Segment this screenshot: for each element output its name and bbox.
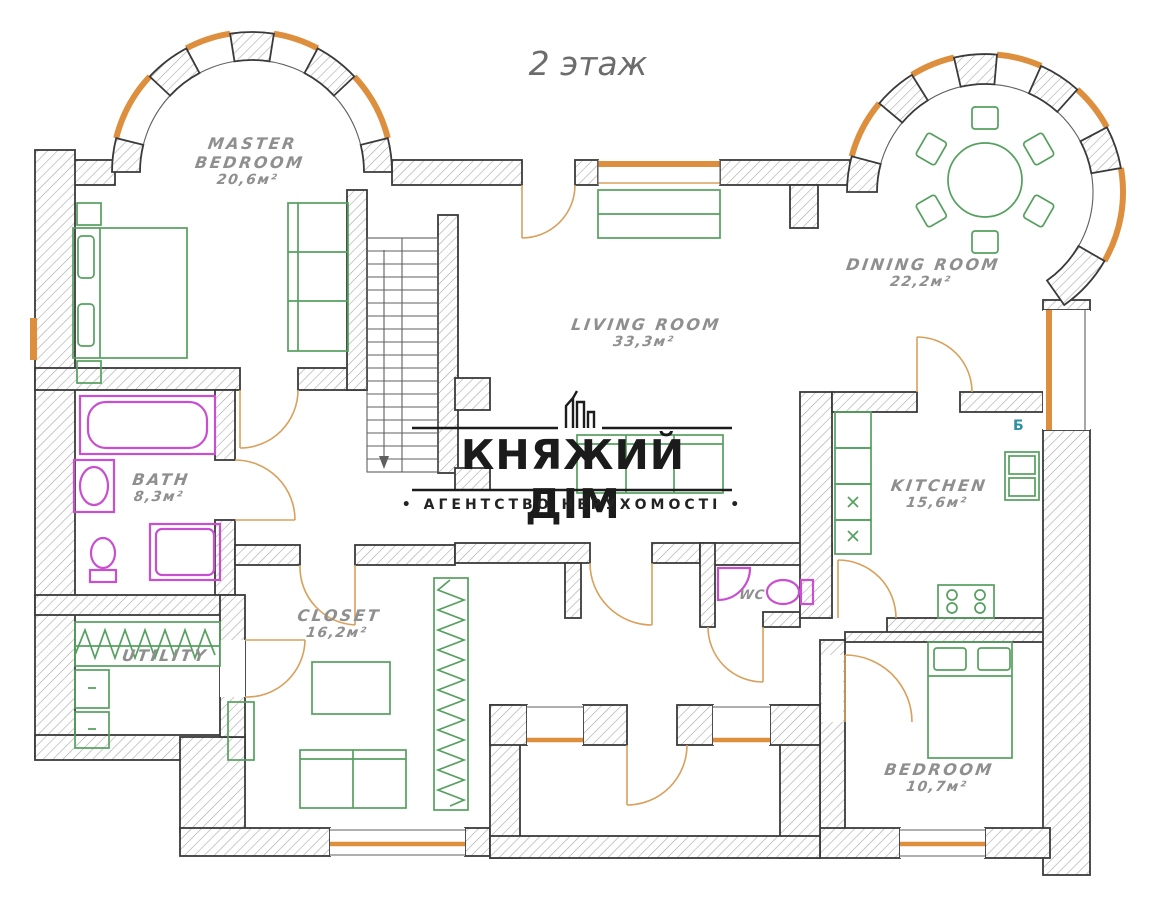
utility-closet-door: [245, 640, 305, 697]
closet-window: [330, 828, 465, 856]
balcony-door: [522, 185, 575, 238]
room-label-kitchen: KITCHEN 15,6м²: [887, 476, 988, 512]
room-label-utility: UTILITY: [121, 646, 210, 665]
kitchen-door: [838, 560, 896, 618]
terrace-window-left: [527, 705, 583, 745]
room-label-bedroom: BEDROOM 10,7м²: [881, 760, 995, 796]
kitchen-stove: [938, 585, 994, 618]
dining-table: [915, 107, 1054, 253]
room-label-bath: BATH 8,3м²: [129, 470, 191, 506]
bath-shower: [150, 524, 220, 580]
wc-door: [708, 627, 763, 682]
watermark-tagline: • АГЕНТСТВО НЕРУХОМОСТІ •: [400, 497, 745, 513]
room-label-living-room: LIVING ROOM 33,3м²: [568, 315, 723, 351]
living-room-window: [598, 160, 720, 185]
closet-sofa: [300, 750, 406, 808]
bath-door: [235, 460, 295, 520]
terrace-window-right: [713, 705, 770, 745]
watermark-brand: КНЯЖИЙ ДІМ: [412, 431, 734, 529]
master-sofa: [288, 203, 348, 351]
bedroom-window: [900, 828, 985, 858]
corridor-door: [590, 563, 652, 625]
kitchen-window: [1043, 310, 1090, 430]
kitchen-counter: [835, 412, 871, 554]
bedroom-door: [845, 655, 912, 722]
floor-title: 2 этаж: [529, 44, 648, 83]
room-label-dining-room: DINING ROOM 22,2м²: [843, 255, 1002, 291]
kitchen-boiler-symbol: Б: [1013, 418, 1024, 434]
living-cabinet: [598, 190, 720, 238]
dining-kitchen-door: [917, 337, 972, 392]
kitchen-fridge: [1005, 452, 1039, 500]
terrace-door: [627, 745, 687, 805]
room-label-closet: CLOSET 16,2м²: [294, 606, 382, 642]
closet-wardrobe: [434, 578, 468, 810]
bedroom-bed: [928, 642, 1012, 758]
bath-sink: [74, 460, 114, 512]
bath-toilet: [90, 538, 116, 582]
bathtub: [80, 396, 215, 454]
room-label-master-bedroom: MASTER BEDROOM 20,6м²: [191, 134, 308, 189]
closet-table: [312, 662, 390, 714]
master-bedroom-door: [240, 390, 298, 448]
stairs-down-arrow: [379, 456, 389, 469]
left-wall-window: [30, 318, 37, 360]
floorplan: 2 этаж MASTER BEDROOM 20,6м² LIVING ROOM…: [0, 0, 1150, 903]
master-bed: [73, 203, 187, 383]
watermark-building-icon: [566, 391, 594, 428]
room-label-wc: WC: [738, 588, 766, 604]
